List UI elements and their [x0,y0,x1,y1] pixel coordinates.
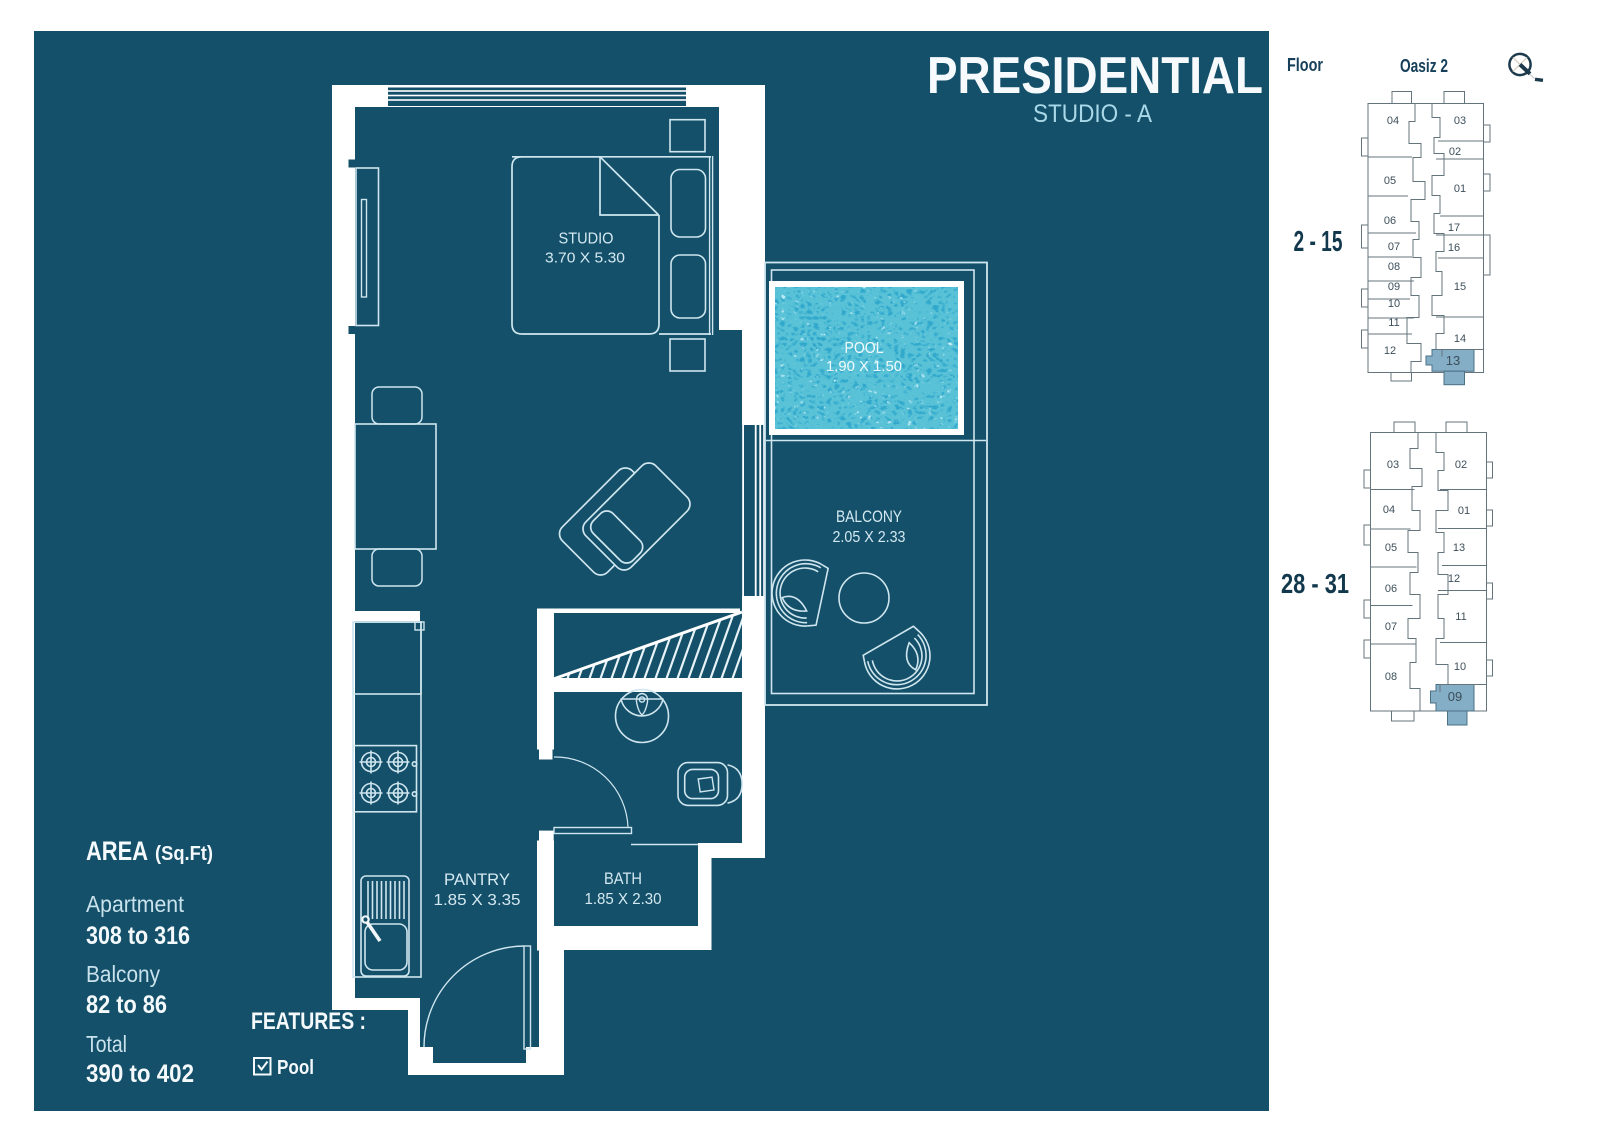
svg-text:08: 08 [1388,261,1400,273]
svg-text:10: 10 [1388,298,1400,310]
svg-text:PRESIDENTIAL: PRESIDENTIAL [927,47,1263,105]
svg-text:1.85 X 2.30: 1.85 X 2.30 [585,891,662,908]
svg-text:02: 02 [1449,146,1461,158]
svg-text:04: 04 [1387,115,1399,127]
svg-text:10: 10 [1454,661,1466,673]
svg-text:07: 07 [1385,621,1397,633]
svg-text:STUDIO: STUDIO [559,231,614,248]
svg-text:390 to 402: 390 to 402 [86,1060,194,1088]
svg-text:05: 05 [1385,542,1397,554]
svg-text:11: 11 [1388,317,1399,329]
svg-text:06: 06 [1384,215,1396,227]
svg-text:82 to 86: 82 to 86 [86,991,167,1019]
svg-text:11: 11 [1455,611,1466,623]
svg-text:16: 16 [1448,242,1460,254]
svg-text:08: 08 [1385,671,1397,683]
svg-text:12: 12 [1384,345,1396,357]
svg-text:14: 14 [1454,333,1466,345]
svg-text:POOL: POOL [845,340,884,357]
svg-text:03: 03 [1387,459,1399,471]
svg-text:06: 06 [1385,583,1397,595]
svg-text:01: 01 [1458,505,1470,517]
svg-text:02: 02 [1455,459,1467,471]
svg-text:05: 05 [1384,175,1396,187]
svg-text:2.05 X 2.33: 2.05 X 2.33 [833,529,906,546]
svg-text:1.85 X 3.35: 1.85 X 3.35 [434,892,521,909]
svg-text:09: 09 [1448,689,1462,704]
svg-text:PANTRY: PANTRY [444,871,510,889]
svg-text:STUDIO - A: STUDIO - A [1033,100,1152,128]
svg-text:09: 09 [1388,281,1400,293]
svg-text:04: 04 [1383,504,1395,516]
svg-text:BALCONY: BALCONY [836,508,902,526]
svg-text:13: 13 [1453,542,1465,554]
svg-text:Apartment: Apartment [86,891,185,917]
svg-text:Floor: Floor [1287,55,1323,75]
svg-text:Oasiz 2: Oasiz 2 [1400,56,1448,76]
svg-text:308 to 316: 308 to 316 [86,922,190,950]
svg-text:FEATURES :: FEATURES : [251,1008,366,1035]
svg-text:BATH: BATH [604,870,642,888]
svg-text:07: 07 [1388,241,1400,253]
svg-text:Pool: Pool [277,1057,314,1079]
svg-text:15: 15 [1454,281,1466,293]
svg-text:03: 03 [1454,115,1466,127]
svg-text:3.70 X 5.30: 3.70 X 5.30 [545,251,625,267]
svg-text:12: 12 [1448,573,1460,585]
svg-text:01: 01 [1454,183,1466,195]
svg-text:28 - 31: 28 - 31 [1281,568,1349,599]
svg-text:17: 17 [1448,222,1460,234]
svg-text:1.90 X 1.50: 1.90 X 1.50 [826,358,902,375]
svg-text:Total: Total [86,1031,127,1057]
svg-text:2 - 15: 2 - 15 [1294,226,1343,258]
svg-text:Balcony: Balcony [86,961,160,987]
svg-text:13: 13 [1446,353,1460,368]
